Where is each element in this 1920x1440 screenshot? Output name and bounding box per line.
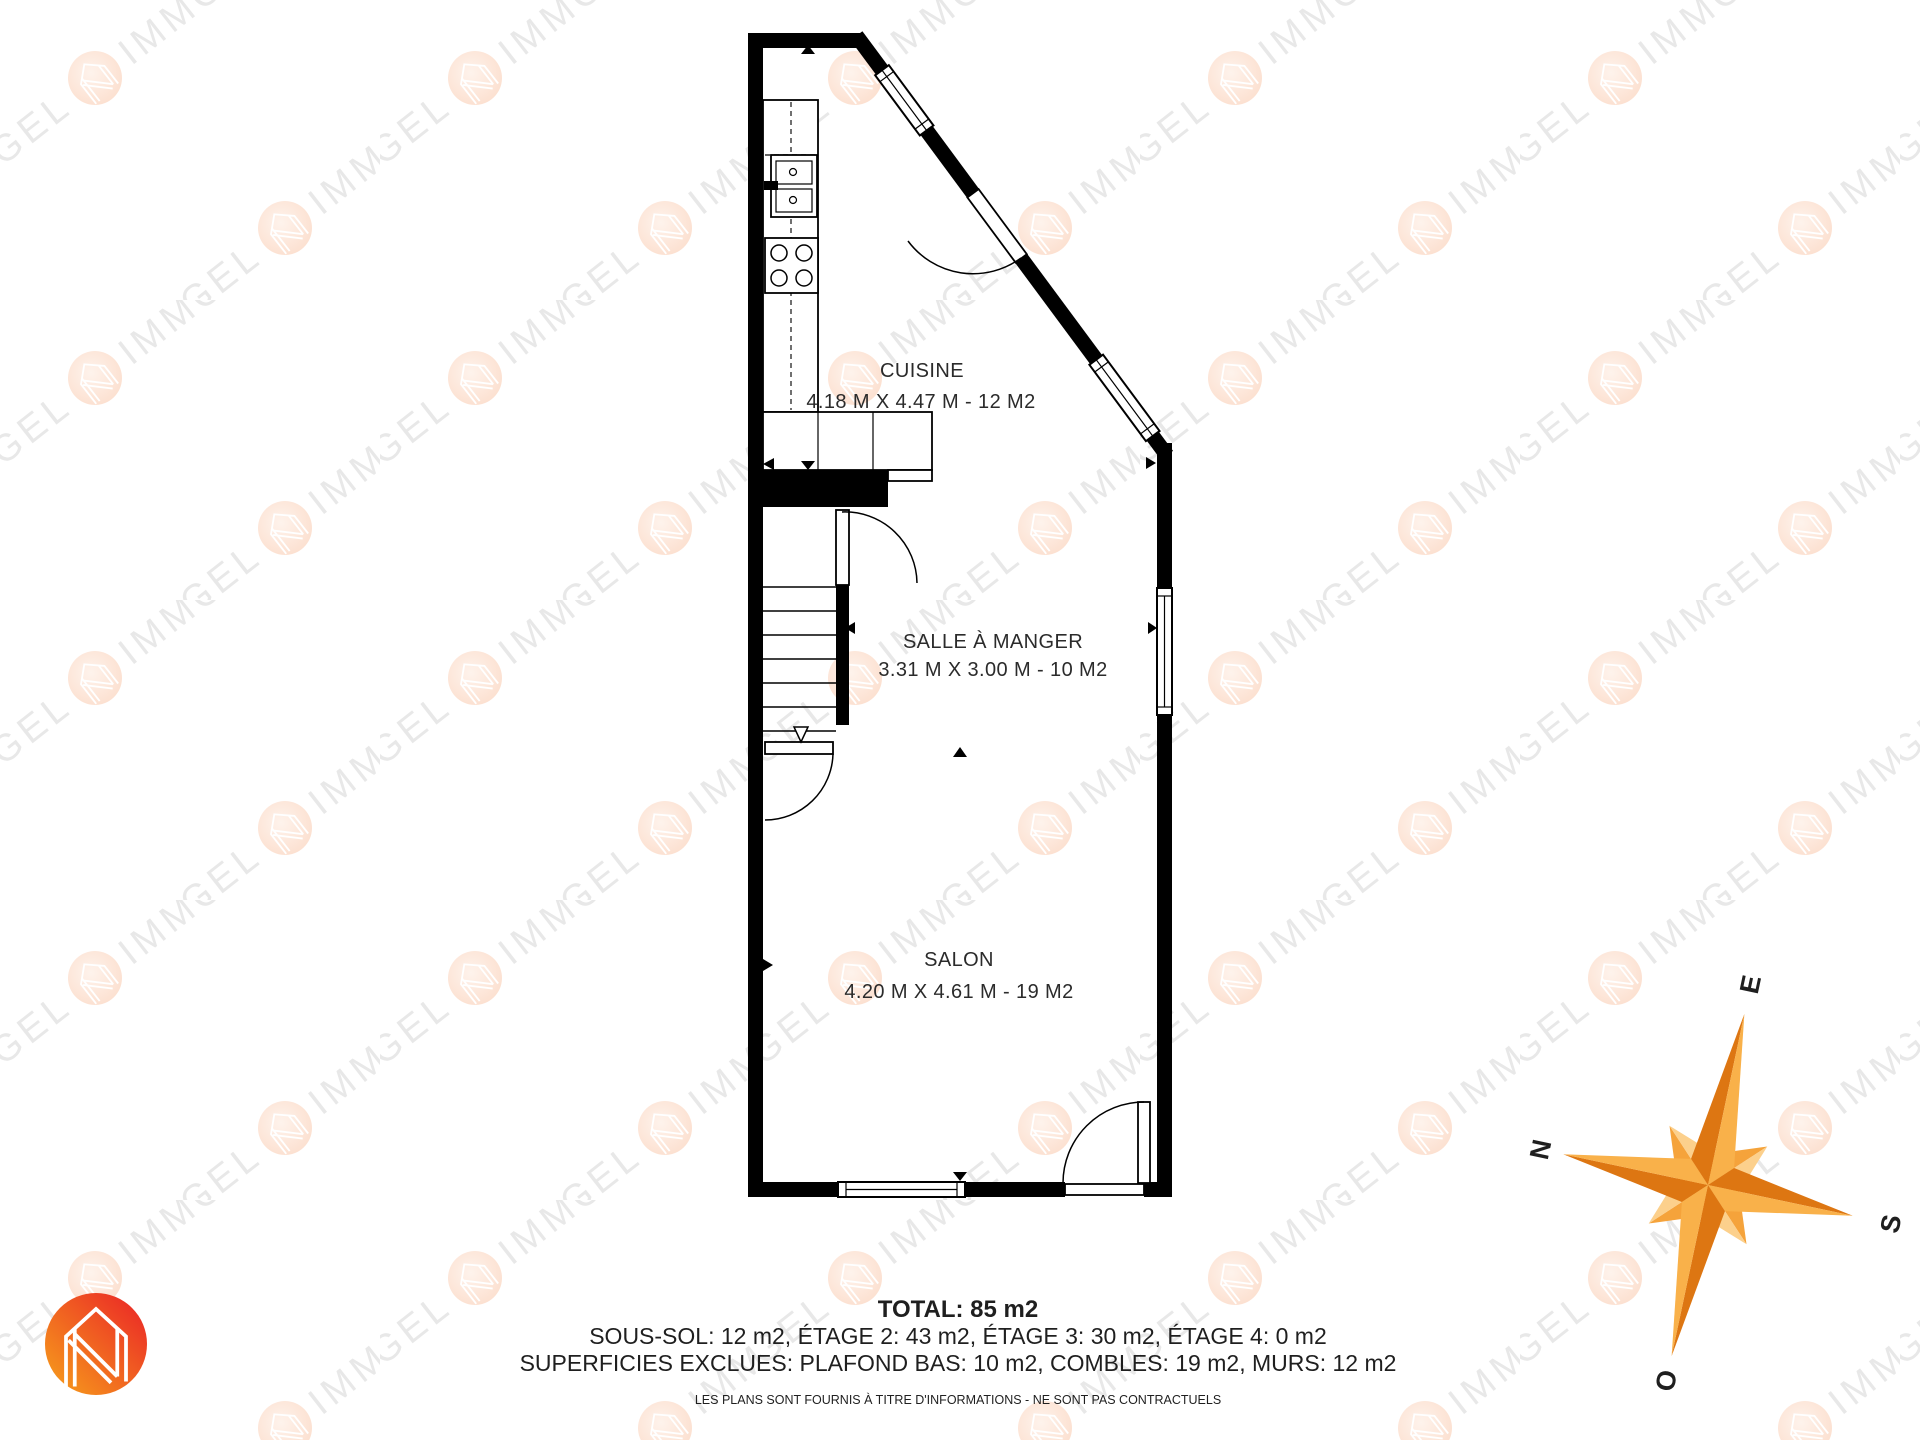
window-right-wall [1157, 588, 1172, 715]
agency-logo [45, 1293, 147, 1395]
faucet-icon [764, 181, 778, 190]
stove [765, 238, 818, 293]
watermark-background [0, 0, 1920, 1440]
room-dims-cuisine: 4.18 M X 4.47 M - 12 M2 [806, 391, 1035, 413]
floorplan-canvas: NIGEL IMMO NIGEL IMMO [0, 0, 1920, 1440]
room-name-salon: SALON [924, 949, 994, 971]
disclaimer-line: LES PLANS SONT FOURNIS À TITRE D'INFORMA… [695, 1392, 1221, 1407]
total-area-line: TOTAL: 85 m2 [878, 1296, 1038, 1323]
room-dims-salon: 4.20 M X 4.61 M - 19 M2 [844, 981, 1073, 1003]
room-dims-salle-a-manger: 3.31 M X 3.00 M - 10 M2 [878, 659, 1107, 681]
window-bottom-wall [838, 1182, 965, 1197]
sink [764, 155, 817, 217]
excluded-areas-line: SUPERFICIES EXCLUES: PLAFOND BAS: 10 m2,… [520, 1350, 1397, 1376]
floor-areas-line: SOUS-SOL: 12 m2, ÉTAGE 2: 43 m2, ÉTAGE 3… [589, 1323, 1327, 1349]
room-name-salle-a-manger: SALLE À MANGER [903, 630, 1083, 653]
kitchen-counter-bottom [763, 412, 932, 481]
room-name-cuisine: CUISINE [880, 360, 964, 382]
